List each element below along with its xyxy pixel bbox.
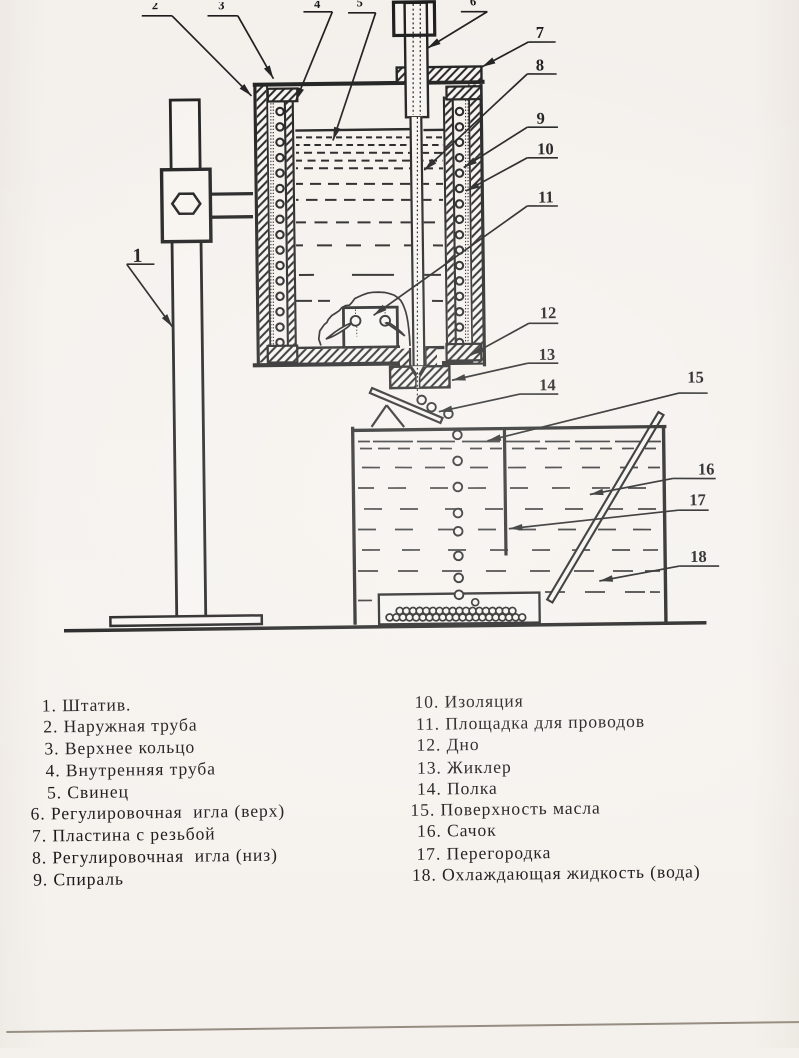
- svg-text:13: 13: [539, 345, 556, 364]
- svg-text:16: 16: [698, 459, 715, 478]
- svg-text:9: 9: [536, 109, 544, 128]
- svg-text:2: 2: [152, 0, 158, 12]
- svg-text:4: 4: [314, 0, 321, 11]
- svg-text:12: 12: [540, 303, 557, 322]
- svg-text:6: 6: [470, 0, 476, 8]
- svg-text:8: 8: [536, 55, 544, 74]
- svg-text:3: 3: [218, 0, 224, 12]
- svg-text:18: 18: [690, 547, 707, 566]
- svg-text:15: 15: [687, 367, 704, 386]
- svg-text:14: 14: [539, 375, 556, 394]
- svg-text:11: 11: [538, 187, 554, 206]
- svg-text:17: 17: [689, 490, 706, 509]
- svg-text:7: 7: [536, 23, 544, 42]
- svg-text:10: 10: [537, 139, 554, 158]
- svg-text:5: 5: [357, 0, 363, 9]
